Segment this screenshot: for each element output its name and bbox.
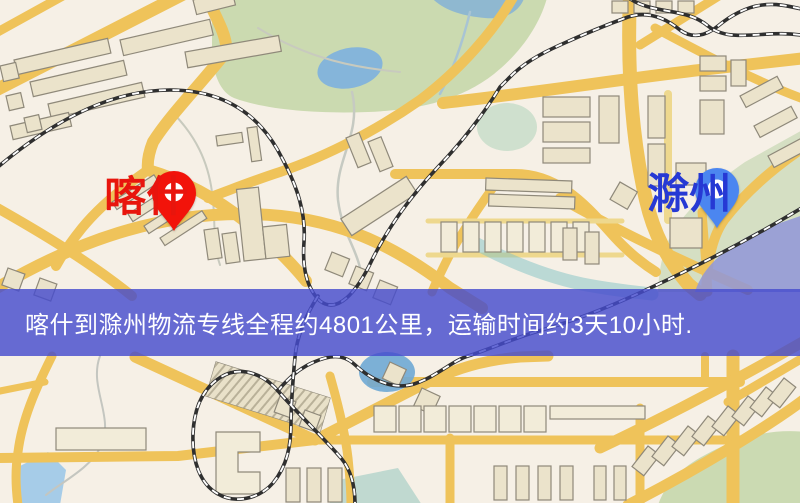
route-info-text: 喀什到滁州物流专线全程约4801公里，运输时间约3天10小时.	[0, 305, 693, 340]
origin-label: 喀什	[104, 176, 188, 218]
map-canvas[interactable]: 喀什到滁州物流专线全程约4801公里，运输时间约3天10小时. 喀什 滁州	[0, 0, 800, 503]
destination-label: 滁州	[647, 173, 731, 215]
route-info-banner: 喀什到滁州物流专线全程约4801公里，运输时间约3天10小时.	[0, 289, 800, 356]
map-artwork	[0, 0, 800, 503]
